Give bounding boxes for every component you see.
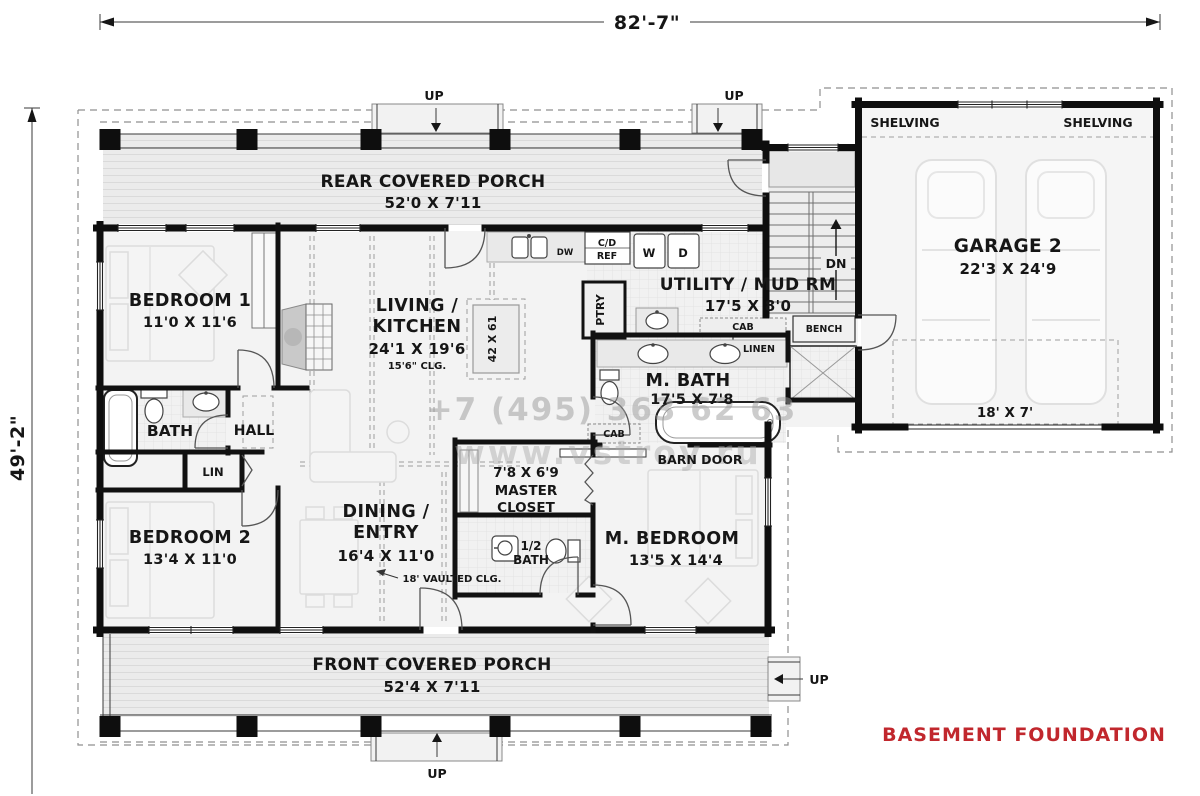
dishwasher-label: DW — [557, 248, 574, 258]
master-closet-dims: 7'8 X 6'9 — [493, 465, 559, 481]
window — [149, 626, 233, 634]
sink — [710, 345, 740, 364]
window — [764, 478, 772, 526]
front-porch-steps — [371, 733, 502, 761]
shower — [790, 346, 856, 400]
ref-label2: REF — [597, 251, 617, 262]
window — [96, 262, 104, 310]
sink — [183, 388, 229, 417]
living-dims: 24'1 X 19'6 — [368, 340, 465, 358]
master-closet-name1: MASTER — [495, 483, 558, 499]
barn-door-label: BARN DOOR — [658, 452, 743, 467]
overall-height-label: 49'-2" — [7, 415, 29, 481]
ref-label1: C/D — [598, 238, 616, 249]
garage-door-size: 18' X 7' — [977, 405, 1033, 421]
hall-name: HALL — [234, 423, 274, 439]
stairs-dn-label: DN — [826, 256, 847, 271]
window — [788, 144, 838, 152]
window — [702, 224, 748, 232]
rear-porch-steps-left — [372, 104, 503, 133]
window — [96, 520, 104, 568]
bedroom2-name: BEDROOM 2 — [129, 528, 251, 548]
utility-sink — [636, 308, 678, 334]
window — [645, 626, 696, 634]
foundation-label: BASEMENT FOUNDATION — [882, 724, 1166, 746]
linen-label: LINEN — [743, 344, 775, 355]
living-ceiling: 15'6" CLG. — [388, 361, 446, 372]
watermark-phone: +7 (495) 363 62 63 — [427, 392, 798, 428]
sink — [638, 345, 668, 364]
bench-label: BENCH — [806, 324, 843, 335]
car — [916, 160, 996, 404]
kitchen-sink — [512, 237, 528, 258]
up-label-rear-left: UP — [424, 88, 443, 103]
overall-width-label: 82'-7" — [614, 12, 680, 34]
up-label-front: UP — [427, 766, 446, 781]
car — [1026, 160, 1106, 404]
dining-ceiling: 18' VAULTED CLG. — [403, 574, 502, 585]
pantry-label: PTRY — [594, 293, 607, 325]
window — [958, 101, 1062, 109]
bedroom2-dims: 13'4 X 11'0 — [143, 552, 237, 568]
dining-name2: ENTRY — [353, 523, 419, 543]
living-name1: LIVING / — [376, 296, 459, 316]
bath-name: BATH — [147, 422, 193, 440]
dining-dims: 16'4 X 11'0 — [337, 547, 434, 565]
window — [118, 224, 166, 232]
kitchen-sink — [531, 237, 547, 258]
master-bath-name: M. BATH — [645, 371, 730, 391]
front-porch-name: FRONT COVERED PORCH — [312, 655, 551, 675]
front-porch-deck — [103, 634, 769, 717]
bathtub — [104, 390, 137, 466]
utility-name: UTILITY / MUD RM — [660, 275, 836, 295]
fireplace — [282, 304, 332, 370]
bedroom1-name: BEDROOM 1 — [129, 291, 251, 311]
window — [316, 224, 360, 232]
dining-name1: DINING / — [343, 502, 430, 522]
cab-label-1: CAB — [732, 322, 754, 333]
master-bedroom-name: M. BEDROOM — [605, 529, 740, 549]
master-closet-name2: CLOSET — [497, 500, 555, 516]
master-bedroom-dims: 13'5 X 14'4 — [629, 553, 723, 569]
up-label-side: UP — [809, 672, 828, 687]
window — [280, 626, 323, 634]
rear-porch-dims: 52'0 X 7'11 — [384, 194, 481, 212]
up-label-rear-right: UP — [724, 88, 743, 103]
utility-dims: 17'5 X 8'0 — [705, 297, 791, 315]
half-bath-name1: 1/2 — [520, 539, 541, 553]
cab-label-2: CAB — [603, 429, 625, 440]
bedroom1-dims: 11'0 X 11'6 — [143, 315, 237, 331]
rear-porch-name: REAR COVERED PORCH — [321, 172, 546, 192]
dryer-label: D — [678, 246, 688, 260]
garage-dims: 22'3 X 24'9 — [959, 260, 1056, 278]
garage-shelving-right: SHELVING — [1063, 115, 1132, 130]
front-porch-dims: 52'4 X 7'11 — [383, 678, 480, 696]
half-bath-name2: BATH — [513, 553, 549, 567]
window — [186, 224, 234, 232]
side-porch-steps — [768, 657, 803, 701]
washer-label: W — [643, 246, 656, 260]
rear-porch-steps-right — [692, 104, 762, 133]
garage-shelving-left: SHELVING — [870, 115, 939, 130]
island-dims-label: 42 X 61 — [486, 316, 499, 363]
garage-name: GARAGE 2 — [954, 236, 1062, 257]
master-bath-dims: 17'5 X 7'8 — [650, 392, 734, 408]
living-name2: KITCHEN — [373, 317, 462, 337]
lin-name: LIN — [202, 465, 223, 479]
bed — [648, 470, 758, 566]
floor-plan-drawing: DN — [0, 0, 1200, 796]
